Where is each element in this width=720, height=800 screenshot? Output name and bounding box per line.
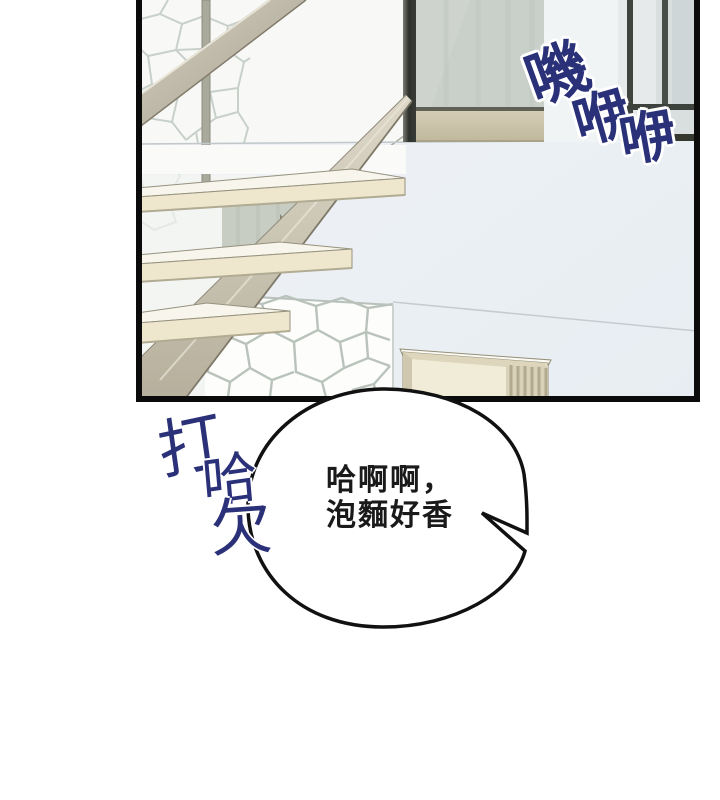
speech-line-1: 哈啊啊， xyxy=(278,464,502,499)
sfx-yawn-char-3: 欠 xyxy=(208,496,274,562)
sfx-creak-char-3: 咿 xyxy=(616,106,681,171)
door-louvers xyxy=(506,365,548,397)
speech-line-2: 泡麵好香 xyxy=(278,499,502,534)
comic-page: 嘰 咿 咿 打 哈 欠 哈啊啊， 泡麵好香 xyxy=(0,0,720,800)
door-frame-post xyxy=(403,0,416,142)
speech-bubble-text: 哈啊啊， 泡麵好香 xyxy=(278,464,502,533)
